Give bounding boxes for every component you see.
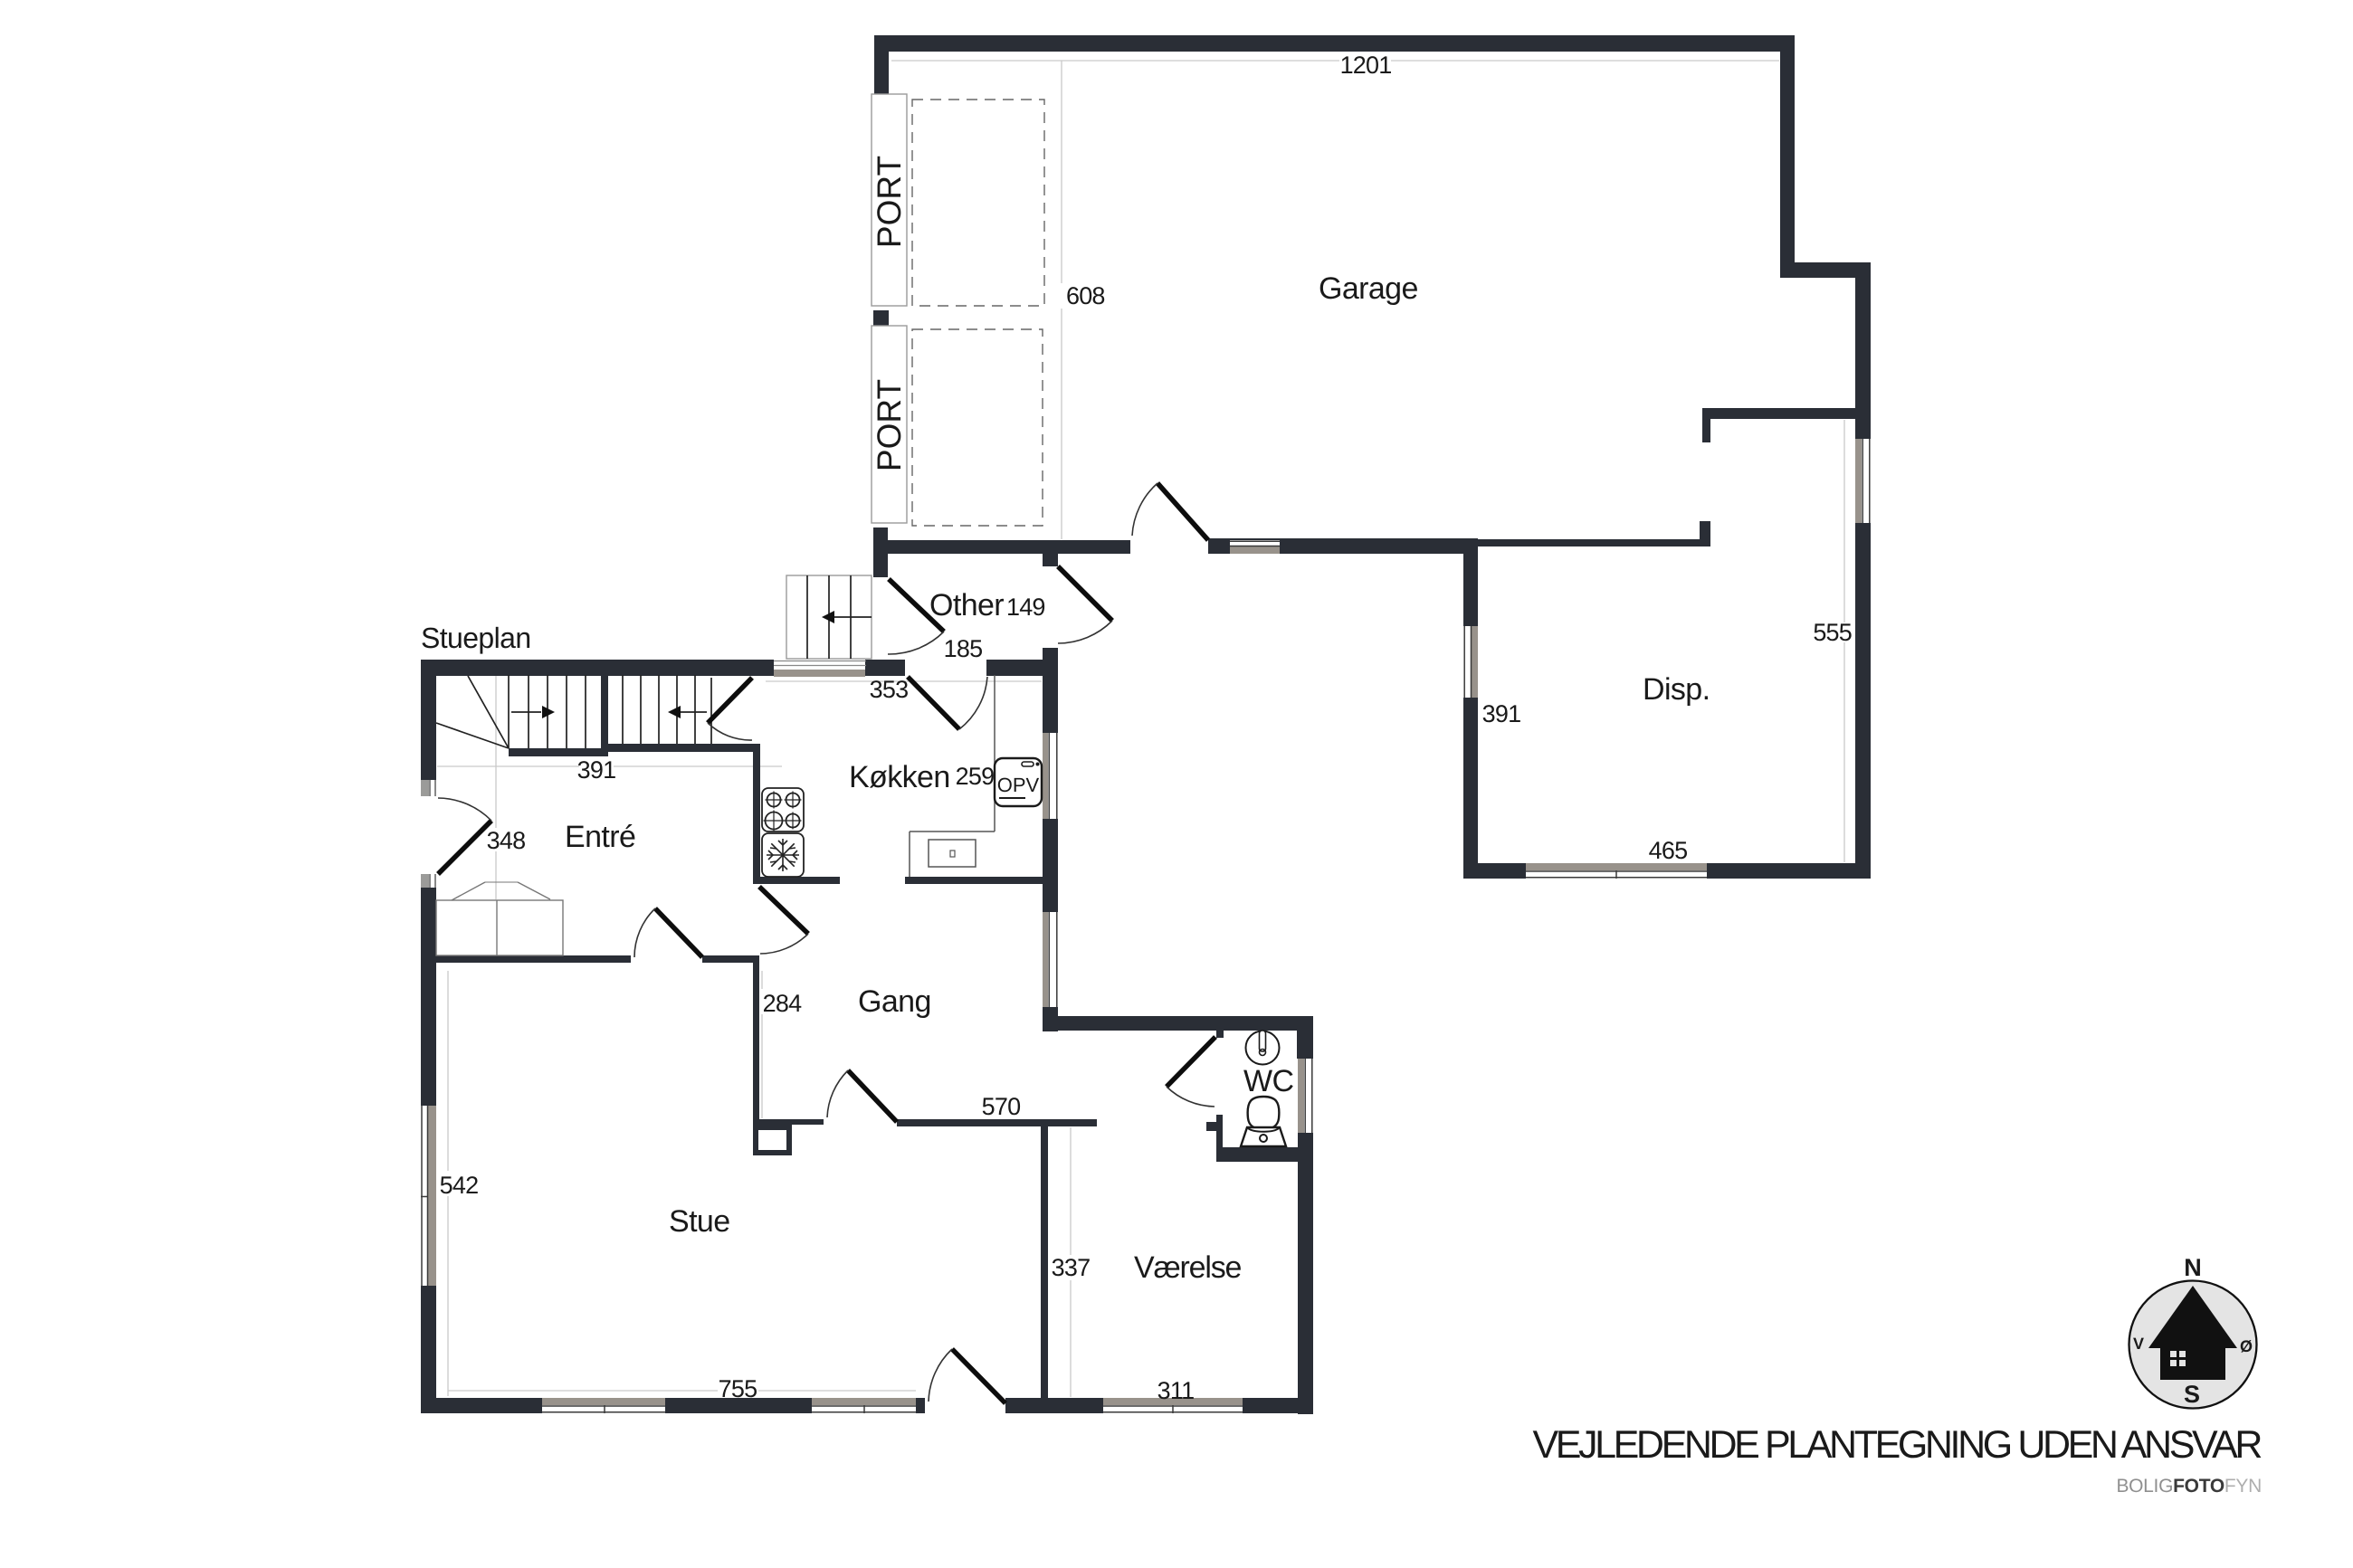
svg-text:V: V bbox=[2133, 1335, 2144, 1353]
svg-text:149: 149 bbox=[1006, 594, 1045, 621]
svg-text:Disp.: Disp. bbox=[1643, 672, 1710, 707]
svg-text:755: 755 bbox=[719, 1375, 757, 1402]
svg-text:Other: Other bbox=[929, 588, 1004, 622]
svg-text:Stue: Stue bbox=[669, 1204, 730, 1239]
svg-text:570: 570 bbox=[982, 1093, 1021, 1120]
svg-text:PORT: PORT bbox=[871, 156, 908, 248]
svg-text:Værelse: Værelse bbox=[1134, 1250, 1241, 1285]
svg-text:259: 259 bbox=[956, 763, 995, 790]
svg-text:PORT: PORT bbox=[871, 379, 908, 471]
svg-text:Garage: Garage bbox=[1319, 271, 1418, 306]
svg-text:391: 391 bbox=[1482, 700, 1521, 727]
svg-text:555: 555 bbox=[1813, 619, 1852, 646]
svg-text:Ø: Ø bbox=[2240, 1337, 2253, 1355]
svg-text:N: N bbox=[2184, 1254, 2202, 1281]
svg-text:465: 465 bbox=[1649, 837, 1688, 864]
svg-text:Entré: Entré bbox=[565, 820, 635, 854]
svg-text:OPV: OPV bbox=[997, 774, 1040, 796]
svg-text:WC: WC bbox=[1243, 1064, 1293, 1098]
svg-text:391: 391 bbox=[577, 756, 616, 784]
svg-text:BOLIGFOTOFYN: BOLIGFOTOFYN bbox=[2116, 1476, 2262, 1497]
svg-text:608: 608 bbox=[1066, 282, 1105, 309]
svg-text:1201: 1201 bbox=[1340, 52, 1392, 79]
svg-text:Køkken: Køkken bbox=[849, 760, 950, 794]
svg-text:337: 337 bbox=[1052, 1254, 1091, 1281]
svg-text:311: 311 bbox=[1157, 1377, 1195, 1404]
svg-text:185: 185 bbox=[944, 635, 983, 662]
svg-text:542: 542 bbox=[440, 1172, 479, 1199]
svg-text:284: 284 bbox=[763, 990, 802, 1017]
svg-text:348: 348 bbox=[487, 827, 526, 854]
svg-text:353: 353 bbox=[870, 676, 909, 703]
svg-text:VEJLEDENDE PLANTEGNING UDEN AN: VEJLEDENDE PLANTEGNING UDEN ANSVAR bbox=[1532, 1423, 2262, 1467]
svg-text:S: S bbox=[2184, 1381, 2200, 1408]
svg-text:Gang: Gang bbox=[858, 984, 931, 1019]
svg-text:Stueplan: Stueplan bbox=[421, 622, 531, 654]
